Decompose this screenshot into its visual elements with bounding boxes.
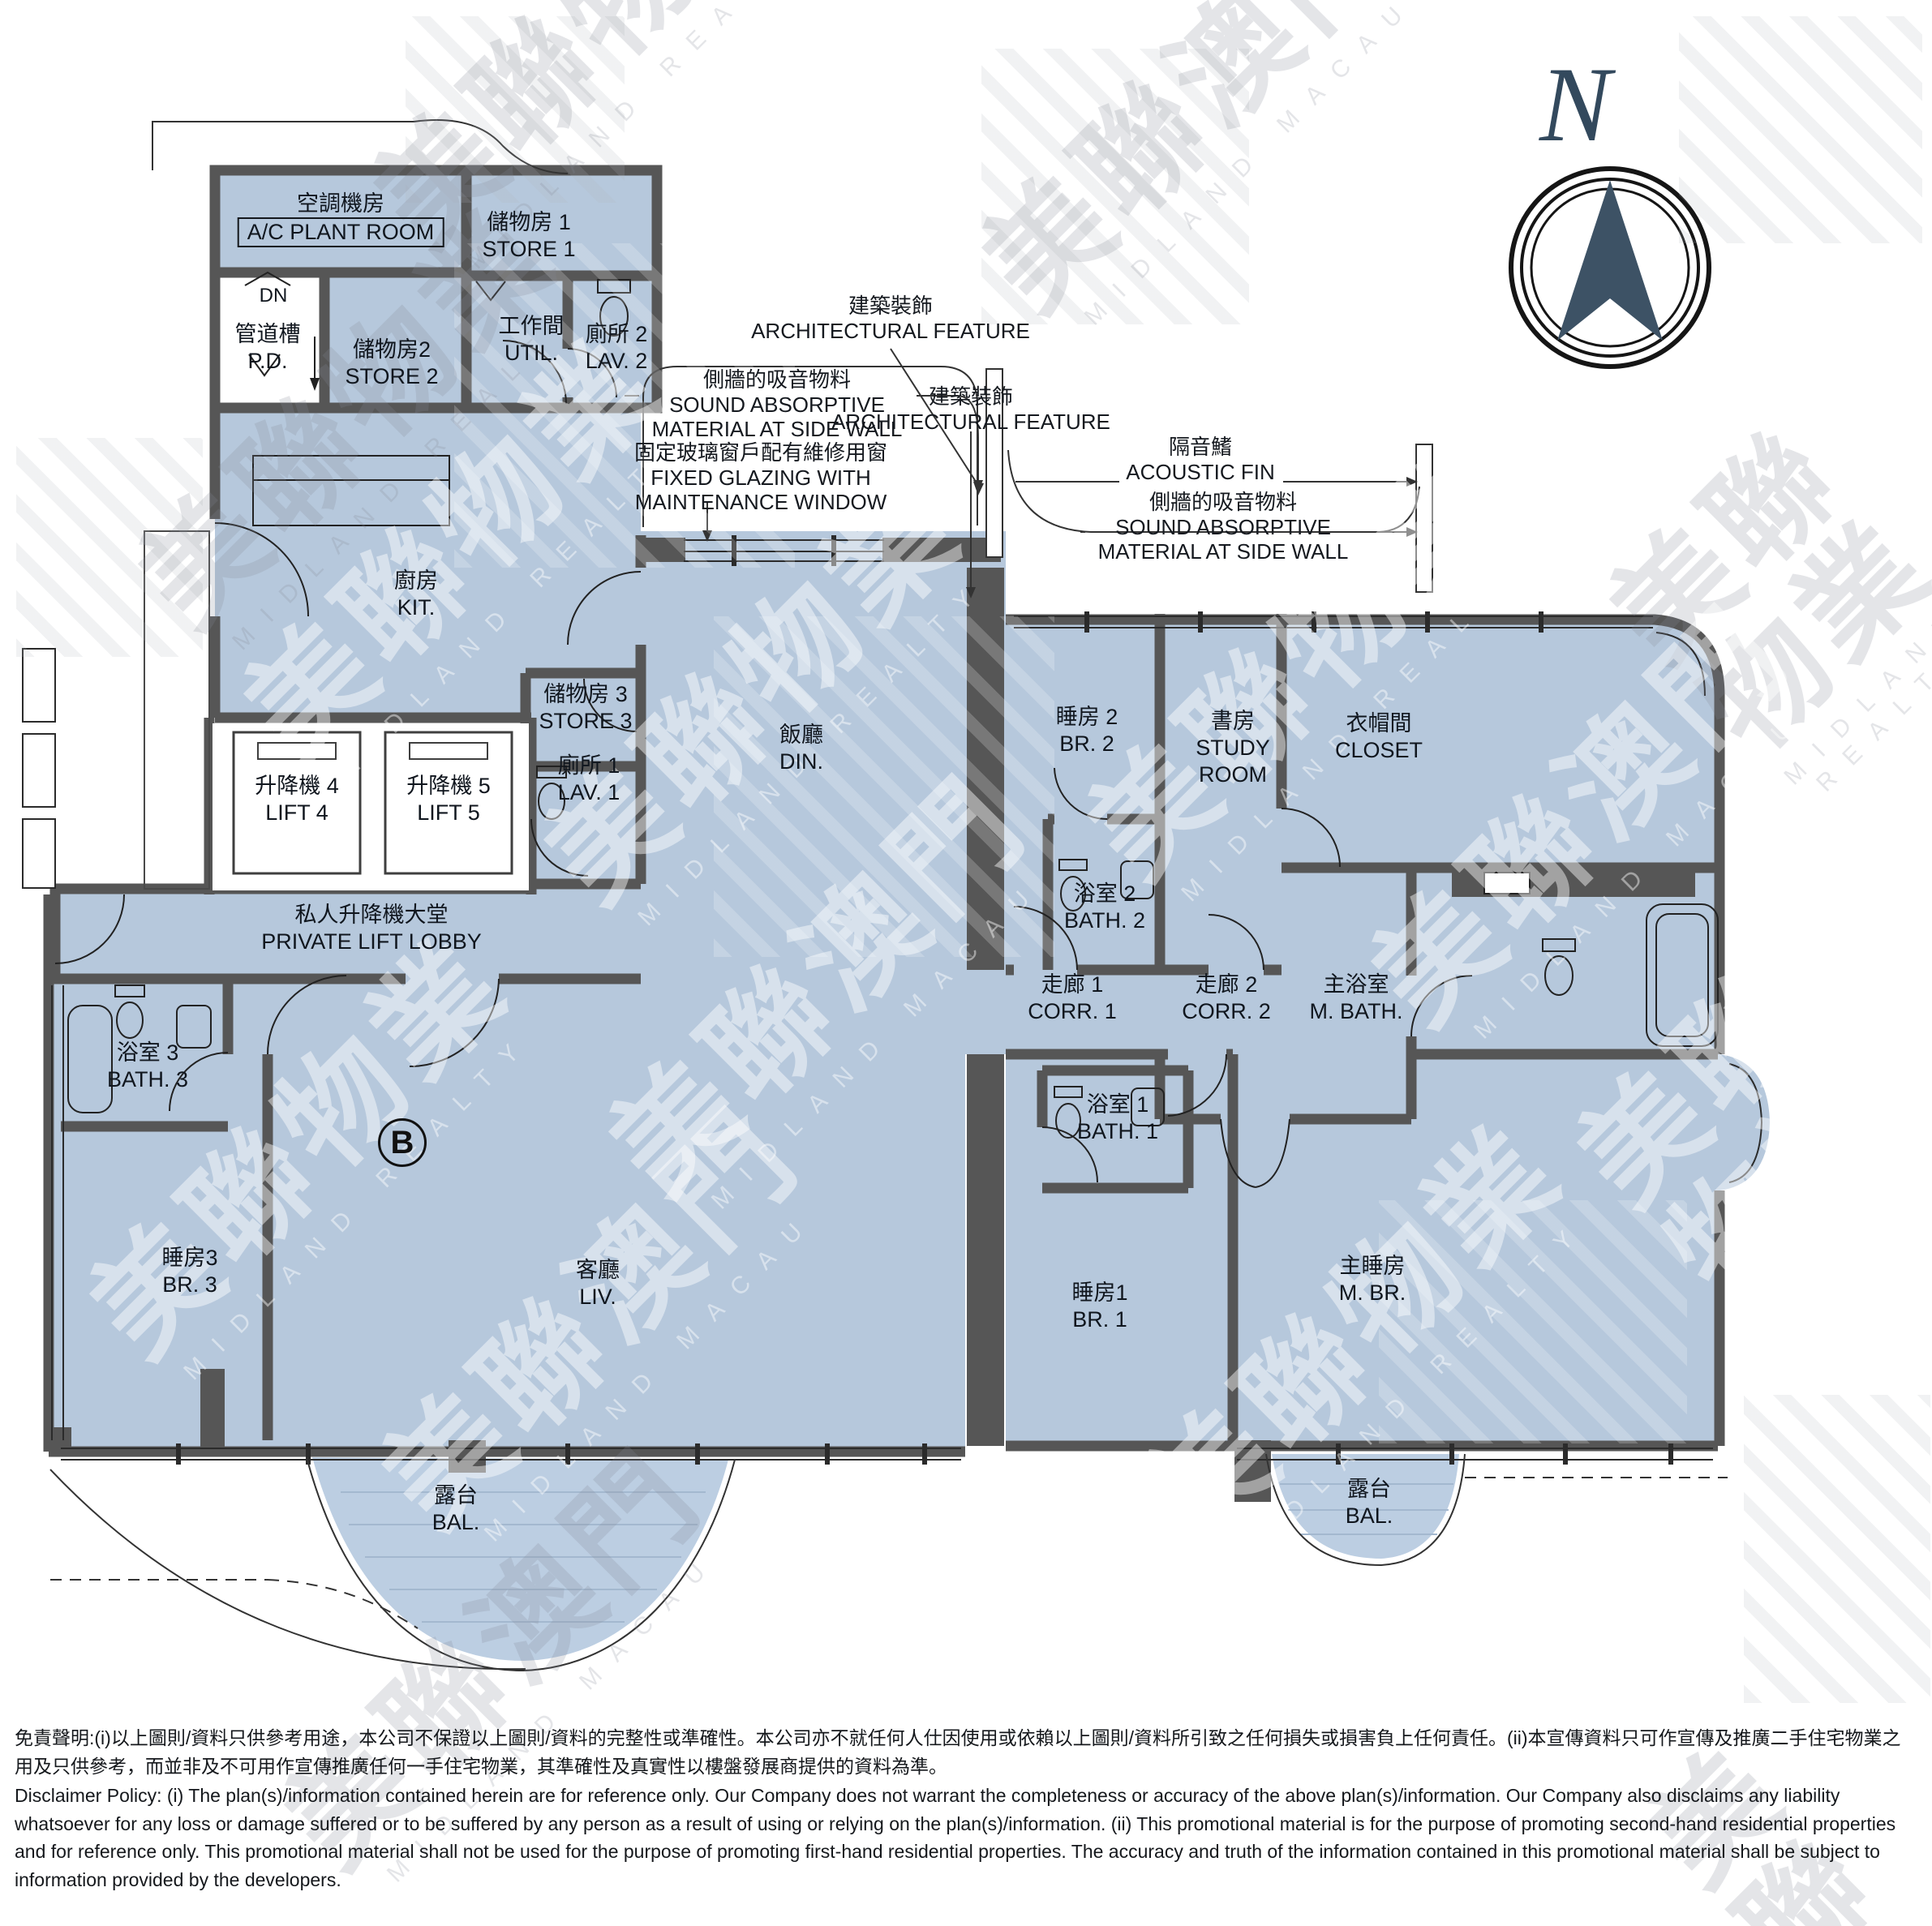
room-label-dn: DN (260, 284, 288, 307)
room-label-liv: 客廳LIV. (576, 1257, 620, 1310)
room-label-din: 飯廳DIN. (779, 722, 823, 775)
room-label-lift-5: 升降機 5LIFT 5 (406, 773, 491, 826)
unit-letter-badge: B (378, 1118, 427, 1167)
room-label-br-3: 睡房3BR. 3 (161, 1245, 217, 1298)
room-label-corr-1: 走廊 1CORR. 1 (1028, 972, 1117, 1025)
annotation-architectural-feature-1: 建築裝飾ARCHITECTURAL FEATURE (751, 294, 1030, 343)
disclaimer-en: Disclaimer Policy: (i) The plan(s)/infor… (15, 1782, 1917, 1894)
room-label-bath-1: 浴室 1BATH. 1 (1077, 1092, 1158, 1145)
room-label-bal-left: 露台BAL. (432, 1482, 480, 1536)
annotation-architectural-feature-2: 建築裝飾ARCHITECTURAL FEATURE (831, 384, 1110, 434)
room-label-br-1: 睡房1BR. 1 (1071, 1280, 1127, 1333)
disclaimer-zh: 免責聲明:(i)以上圖則/資料只供參考用途，本公司不保證以上圖則/資料的完整性或… (15, 1724, 1917, 1780)
room-label-lav-1: 廁所 1LAV. 1 (558, 753, 620, 806)
room-label-store-2: 儲物房2STORE 2 (345, 337, 438, 390)
room-label-pd: 管道槽P.D. (235, 321, 301, 375)
room-label-bal-right: 露台BAL. (1346, 1476, 1393, 1529)
room-label-lav-2: 廁所 2LAV. 2 (586, 321, 648, 375)
room-label-bath-2: 浴室 2BATH. 2 (1064, 881, 1145, 934)
room-label-store-1: 儲物房 1STORE 1 (482, 209, 575, 263)
north-compass-icon (1511, 169, 1709, 367)
room-label-store-3: 儲物房 3STORE 3 (539, 681, 632, 735)
room-label-kit: 廚房KIT. (394, 568, 438, 621)
north-label: N (1539, 42, 1611, 166)
room-label-lift-4: 升降機 4LIFT 4 (255, 773, 339, 826)
floorplan-svg (0, 0, 1932, 1926)
room-label-m-bath: 主浴室M. BATH. (1309, 972, 1402, 1025)
room-label-study-room: 書房STUDY ROOM (1188, 708, 1277, 788)
room-label-bath-3: 浴室 3BATH. 3 (107, 1040, 188, 1093)
disclaimer: 免責聲明:(i)以上圖則/資料只供參考用途，本公司不保證以上圖則/資料的完整性或… (15, 1724, 1917, 1895)
room-label-br-2: 睡房 2BR. 2 (1056, 704, 1118, 757)
annotation-acoustic-fin: 隔音鰭ACOUSTIC FIN (1126, 435, 1274, 484)
room-label-closet: 衣帽間CLOSET (1335, 710, 1423, 764)
room-label-private-lift-lobby: 私人升降機大堂PRIVATE LIFT LOBBY (261, 902, 482, 955)
floor-plan-page: 美聯物業MIDLAND REALTY 美聯澳門MIDLAND MACAU 美聯物… (0, 0, 1932, 1926)
annotation-sound-absorptive-2: 側牆的吸音物料SOUND ABSORPTIVE MATERIAL AT SIDE… (1088, 490, 1359, 564)
room-label-ac-plant-room: 空調機房A/C PLANT ROOM (238, 191, 444, 247)
room-label-m-br: 主睡房M. BR. (1339, 1253, 1406, 1306)
room-label-corr-2: 走廊 2CORR. 2 (1182, 972, 1271, 1025)
room-label-util: 工作間UTIL. (499, 313, 565, 367)
annotation-fixed-glazing: 固定玻璃窗戶配有維修用窗FIXED GLAZING WITH MAINTENAN… (613, 440, 909, 515)
